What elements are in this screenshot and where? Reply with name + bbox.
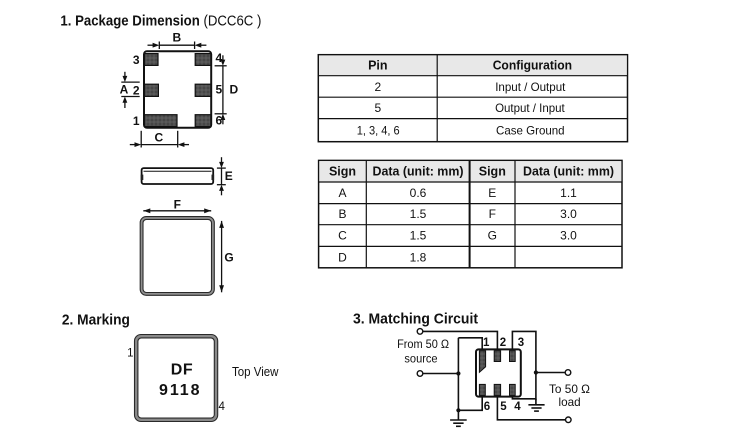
svg-text:C: C (154, 131, 163, 145)
svg-text:2: 2 (133, 83, 140, 97)
svg-text:E: E (225, 169, 233, 183)
svg-text:9118: 9118 (159, 382, 200, 399)
svg-text:E: E (488, 186, 496, 200)
svg-text:Top View: Top View (232, 365, 279, 379)
svg-text:Output / Input: Output / Input (495, 101, 565, 115)
svg-text:4: 4 (514, 401, 521, 413)
svg-text:1.5: 1.5 (410, 229, 427, 243)
svg-text:Input / Output: Input / Output (495, 80, 566, 94)
svg-text:2: 2 (374, 80, 381, 94)
svg-text:1.5: 1.5 (410, 207, 427, 221)
svg-text:1, 3, 4, 6: 1, 3, 4, 6 (357, 124, 400, 138)
svg-text:5: 5 (374, 101, 381, 115)
svg-text:3: 3 (133, 53, 140, 67)
svg-text:A: A (120, 83, 129, 97)
svg-text:A: A (338, 186, 346, 200)
svg-text:To 50 Ω: To 50 Ω (549, 383, 590, 396)
svg-text:G: G (224, 251, 233, 265)
svg-text:Configuration: Configuration (493, 59, 572, 73)
svg-text:3.0: 3.0 (560, 207, 577, 221)
svg-text:4: 4 (216, 51, 223, 65)
svg-text:5: 5 (500, 401, 507, 413)
svg-text:3. Matching Circuit: 3. Matching Circuit (353, 312, 478, 328)
svg-text:1: 1 (483, 337, 490, 349)
svg-text:1. Package Dimension (DCC6C ): 1. Package Dimension (DCC6C ) (60, 14, 261, 30)
svg-text:Sign: Sign (479, 165, 506, 179)
svg-text:Sign: Sign (329, 165, 356, 179)
svg-text:1: 1 (133, 114, 140, 128)
svg-text:B: B (172, 30, 181, 44)
svg-text:source: source (404, 352, 437, 365)
svg-text:C: C (338, 229, 347, 243)
svg-text:DF: DF (171, 362, 194, 379)
svg-text:3.0: 3.0 (560, 229, 577, 243)
svg-text:1.8: 1.8 (410, 250, 427, 264)
svg-text:2. Marking: 2. Marking (62, 312, 130, 328)
svg-text:5: 5 (216, 82, 223, 96)
svg-text:From 50 Ω: From 50 Ω (397, 338, 449, 351)
svg-text:0.6: 0.6 (410, 186, 427, 200)
svg-text:load: load (559, 396, 581, 409)
svg-text:D: D (230, 83, 239, 97)
svg-text:F: F (174, 197, 181, 211)
svg-text:1: 1 (127, 348, 133, 360)
svg-text:2: 2 (500, 337, 506, 349)
svg-text:Data (unit: mm): Data (unit: mm) (373, 165, 464, 179)
svg-text:F: F (489, 207, 496, 221)
svg-text:Data (unit: mm): Data (unit: mm) (523, 165, 614, 179)
svg-text:4: 4 (219, 401, 226, 413)
svg-text:3: 3 (518, 337, 524, 349)
svg-text:6: 6 (484, 401, 490, 413)
svg-text:Pin: Pin (368, 59, 387, 73)
svg-text:D: D (338, 250, 347, 264)
svg-text:Case Ground: Case Ground (496, 124, 565, 138)
svg-text:G: G (488, 229, 497, 243)
svg-text:B: B (338, 207, 346, 221)
svg-text:1.1: 1.1 (560, 186, 577, 200)
svg-text:6: 6 (216, 114, 223, 128)
